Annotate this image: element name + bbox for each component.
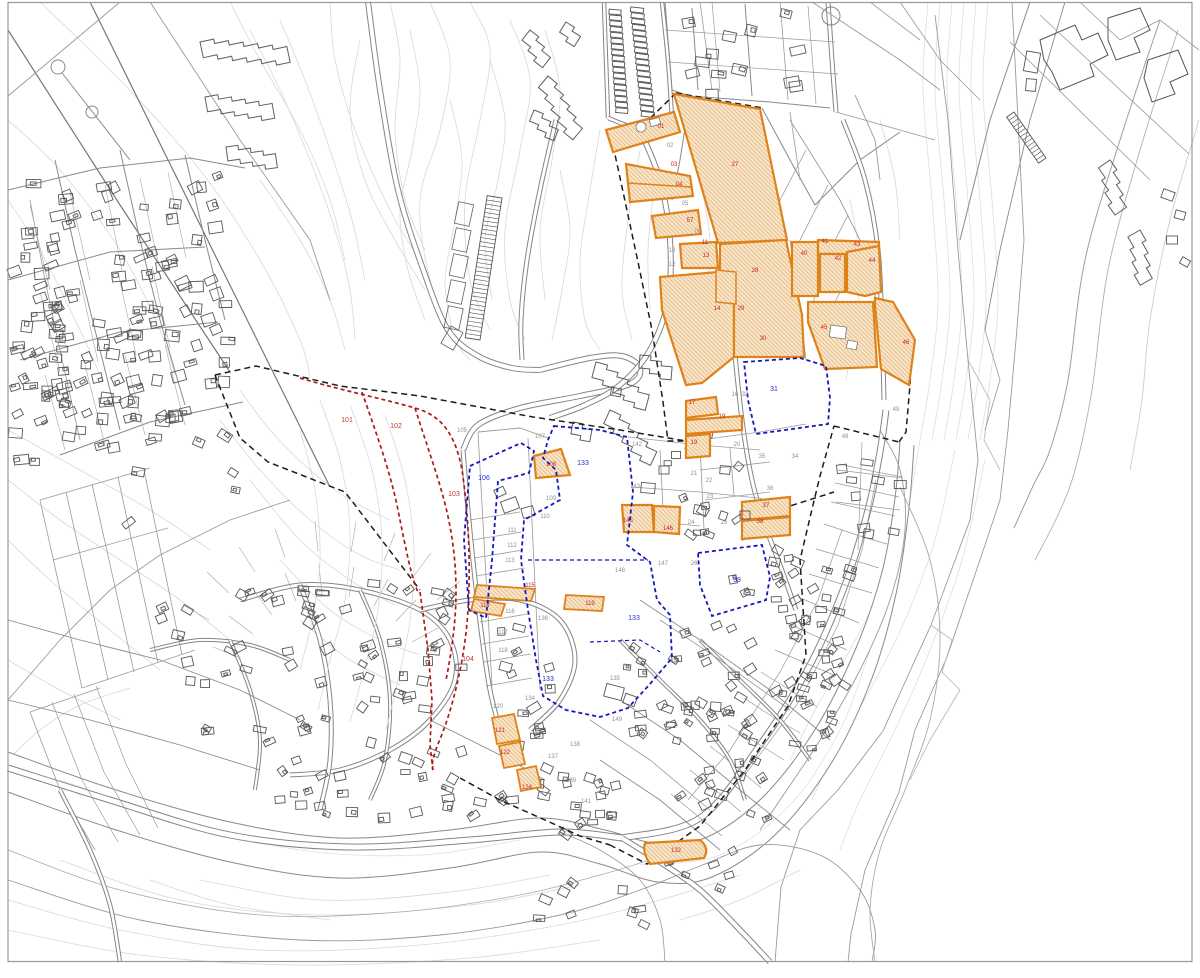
svg-text:31: 31 xyxy=(770,386,778,393)
svg-text:138: 138 xyxy=(570,742,581,748)
svg-text:37: 37 xyxy=(763,503,770,509)
svg-text:45: 45 xyxy=(821,325,828,331)
svg-text:104: 104 xyxy=(462,656,474,663)
svg-text:49: 49 xyxy=(893,407,900,413)
svg-text:141: 141 xyxy=(581,799,592,805)
svg-text:29: 29 xyxy=(738,306,745,312)
svg-text:42: 42 xyxy=(835,256,842,262)
svg-text:03: 03 xyxy=(671,162,678,168)
svg-text:106: 106 xyxy=(478,475,490,482)
svg-text:30: 30 xyxy=(760,336,767,342)
svg-text:36: 36 xyxy=(767,486,774,492)
svg-text:149: 149 xyxy=(612,717,623,723)
svg-text:122: 122 xyxy=(500,750,511,756)
svg-text:02: 02 xyxy=(667,143,674,149)
svg-text:46: 46 xyxy=(903,340,910,346)
svg-text:117: 117 xyxy=(498,630,508,636)
svg-text:113: 113 xyxy=(505,558,515,564)
svg-text:109: 109 xyxy=(546,496,557,502)
svg-text:38: 38 xyxy=(757,519,764,525)
svg-text:21: 21 xyxy=(691,471,698,477)
svg-text:133: 133 xyxy=(628,615,640,622)
svg-text:142: 142 xyxy=(632,442,643,448)
svg-text:121: 121 xyxy=(495,728,506,734)
svg-text:19: 19 xyxy=(691,440,698,446)
svg-text:119: 119 xyxy=(585,601,595,607)
svg-text:57: 57 xyxy=(687,218,694,224)
svg-text:112: 112 xyxy=(507,543,517,549)
svg-text:34: 34 xyxy=(792,454,799,460)
svg-text:132: 132 xyxy=(671,848,682,854)
svg-text:32: 32 xyxy=(742,392,749,398)
svg-text:17: 17 xyxy=(689,400,696,406)
svg-text:23: 23 xyxy=(707,494,714,500)
svg-text:148: 148 xyxy=(615,568,626,574)
svg-text:145: 145 xyxy=(623,518,634,524)
svg-text:120: 120 xyxy=(493,704,504,710)
svg-text:133: 133 xyxy=(577,460,589,467)
svg-text:22: 22 xyxy=(706,478,713,484)
svg-text:24: 24 xyxy=(688,520,695,526)
svg-text:137: 137 xyxy=(548,754,559,760)
svg-text:147: 147 xyxy=(658,561,669,567)
svg-text:111: 111 xyxy=(507,528,517,534)
svg-text:103: 103 xyxy=(448,491,460,498)
svg-text:110: 110 xyxy=(540,514,550,520)
svg-text:25: 25 xyxy=(721,520,728,526)
svg-text:41: 41 xyxy=(822,239,829,245)
svg-text:40: 40 xyxy=(801,251,808,257)
svg-text:10: 10 xyxy=(669,248,676,254)
svg-text:143: 143 xyxy=(630,484,641,490)
svg-text:11: 11 xyxy=(702,240,709,246)
svg-text:139: 139 xyxy=(566,778,577,784)
svg-text:116: 116 xyxy=(505,609,515,615)
svg-text:124: 124 xyxy=(522,785,533,791)
svg-text:133: 133 xyxy=(542,676,554,683)
svg-text:01: 01 xyxy=(658,124,665,130)
svg-text:16: 16 xyxy=(732,392,739,398)
svg-text:35: 35 xyxy=(759,454,766,460)
svg-text:134: 134 xyxy=(525,696,536,702)
svg-text:14: 14 xyxy=(714,306,721,312)
svg-text:26: 26 xyxy=(691,561,698,567)
svg-text:101: 101 xyxy=(341,417,353,424)
svg-text:44: 44 xyxy=(869,258,876,264)
svg-text:19: 19 xyxy=(719,414,726,420)
svg-text:27: 27 xyxy=(732,162,739,168)
svg-text:04: 04 xyxy=(676,182,683,188)
svg-text:39: 39 xyxy=(733,577,741,584)
svg-text:107: 107 xyxy=(535,434,546,440)
svg-text:12: 12 xyxy=(669,262,676,268)
svg-text:118: 118 xyxy=(498,648,508,654)
svg-text:43: 43 xyxy=(854,242,861,248)
svg-text:146: 146 xyxy=(663,526,674,532)
svg-text:09: 09 xyxy=(695,229,702,235)
svg-text:135: 135 xyxy=(610,676,621,682)
svg-text:20: 20 xyxy=(734,442,741,448)
svg-text:105: 105 xyxy=(457,428,468,434)
svg-text:05: 05 xyxy=(682,201,689,207)
svg-text:136: 136 xyxy=(538,616,549,622)
svg-text:114: 114 xyxy=(480,603,490,609)
svg-text:13: 13 xyxy=(703,253,710,259)
svg-text:48: 48 xyxy=(842,434,849,440)
svg-text:102: 102 xyxy=(390,423,402,430)
svg-text:28: 28 xyxy=(752,268,759,274)
svg-text:115: 115 xyxy=(525,583,535,589)
